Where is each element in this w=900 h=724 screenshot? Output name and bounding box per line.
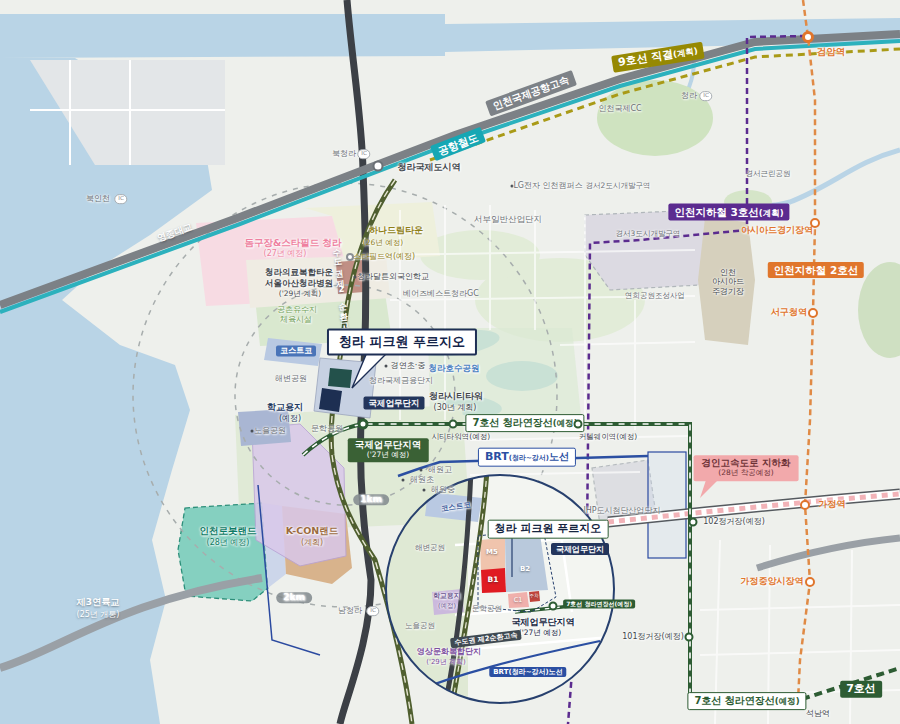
haewon-cho-dot [402,479,405,482]
ibd-label: 국제업무단지 [369,397,420,407]
line7ext-bottom-label: 7호선 청라연장선 [694,695,774,706]
brt-label-3: 노선 [549,451,569,462]
geomam-station-marker [802,31,814,43]
namcheongna-ic-label: 남청라 [338,607,362,615]
inset-munhak-label: 문학공원 [472,605,502,613]
inset-school-sub: (예정) [438,603,456,610]
inset-line7ext-label: 7호선 청라연장선 [566,600,614,607]
line7ext-bottom-sub: (예정) [775,696,800,706]
brt-badge: BRT(청라~강서)노선 [478,448,576,467]
line9-badge-sub: (계획) [672,45,698,59]
inset-title-label: 청라 피크원 푸르지오 [495,522,602,535]
bridge3-sub: (25년 개통) [77,611,120,619]
inset-brt-badge: BRT(청라~강서)노선 [489,667,566,677]
asiad-station-marker [810,218,820,228]
haewon-go-dot [420,469,423,472]
canalway-station-marker [574,420,583,429]
ibd-badge: 국제업무단지 [364,397,425,410]
hana-dream-label: 하나드림타운 [369,226,423,235]
line7-label: 7호선 [846,682,876,695]
inset-block-b1: B1 [488,576,499,584]
ibd-station-badge: 국제업무단지역 ('27년 예정) [348,438,429,462]
cheongna-intl-station-marker [373,161,384,172]
gyeongyeon-label: 경연초·중 [391,362,426,370]
line7ext-badge: 7호선 청라연장선(예정) [465,414,584,432]
inset-block-m5: M5 [486,549,498,556]
seogucheong-station-label: 서구청역 [771,308,807,317]
asiad-station-label: 아시아드경기장역 [741,226,813,235]
kcon-land-label: K-CON랜드 [286,526,338,536]
s101-station-marker [685,633,694,642]
yeonhui-label: 연희공원조성사업 [625,292,685,300]
asiad-stadium-label: 인천 아시아드 주경기장 [712,269,744,296]
school-site-label: 학교용지 [267,403,303,412]
gajeong-market-station-label: 가정중앙시장역 [741,577,804,586]
noeul-park-label: 노을공원 [254,427,286,435]
line3-badge: 인천지하철 3호선(계획) [668,204,789,221]
dome-starfield-sub: (27년 예정) [264,250,307,258]
main-title-label: 청라 피크원 푸르지오 [339,334,465,349]
inset-ibd-label: 국제업무단지 [556,544,604,553]
bukcheongna-ic-oval: IC [357,149,370,159]
inset-station-marker [549,602,558,611]
haewon-jung-dot [423,489,426,492]
medical-town-sub: ('29년 계획) [279,290,321,298]
starfield-station-marker [346,253,354,261]
gyeongyeon-dot [385,365,388,368]
hana-dream-sub: (26년 예정) [363,239,403,247]
citytower-station-label: 시티타워역(예정) [432,433,490,441]
gyeongseo-park-label: 경서근린공원 [746,170,791,178]
line7ext-label: 7호선 청라연장선 [472,417,552,428]
cheongna-ic-label: 청라 [681,92,697,100]
stadium-line2: 아시아드 [712,279,744,287]
gajeong-station-label: 가정역 [819,500,846,509]
incheon-cc-label: 인천국제CC [598,105,641,113]
medical-town-label: 청라의료복합타운 [265,268,333,277]
cheongna-location-map: 9호선 직결(계획) 인천국제공항고속 공항철도 영종대교 검암역 인천국제CC… [0,0,900,724]
scale-2km: 2km [276,592,312,603]
lake-park-label: 청라호수공원 [429,364,480,373]
ibd-station-marker [358,419,369,430]
line2-badge-label: 인천지하철 2호선 [774,264,858,276]
inset-school-label: 학교용지 [433,593,461,600]
brt-label-2: (청라~강서) [509,454,549,462]
cheongna-intl-station-label: 청라국제도시역 [398,163,461,172]
citytower-station-marker [449,420,458,429]
seogucheong-station-marker [808,308,818,318]
costco-label: 코스트코 [280,346,312,355]
gyeongin-badge: 경인고속도로 지하화 (28년 착공예정) [694,455,799,481]
haewon-jung-label: 해원중 [431,486,455,494]
dalton-label: 청라달튼외국인학교 [357,273,429,281]
inset-title-badge: 청라 피크원 푸르지오 [488,520,609,539]
inset-noeul-label: 노을공원 [405,622,435,630]
haewon-cho-label: 해원초 [410,476,434,484]
finance-district-label: 청라국제금융단지 [369,377,433,385]
gyeongseo2-label: 경서2도시개발구역 [586,182,651,190]
inset-ibd-station-sub: ('27년 예정) [519,629,561,637]
inset-haebyeon-label: 해변공원 [415,544,445,552]
s102-station-marker [689,518,698,527]
s101-station-label: 101정거장(예정) [622,633,684,641]
gyeongseo3-label: 경서3도시개발구역 [616,230,681,238]
costco-badge: 코스트코 [276,345,316,356]
bukincheon-ic-oval: IC [114,194,127,204]
line2-badge: 인천지하철 2호선 [768,262,864,278]
line7ext-bottom-badge: 7호선 청라연장선(예정) [687,692,806,710]
inset-brt-label: BRT(청라~강서)노선 [493,668,562,676]
citytower-sub: (30년 계획) [434,404,477,412]
inset-ibd-badge: 국제업무단지 [551,543,609,555]
bukincheon-ic-label: 북인천 [86,195,110,203]
seoknam-station-label: 석남역 [806,710,830,718]
citytower-label: 청라시티타워 [429,392,483,401]
haebyeon-park-label: 해변공원 [275,375,307,383]
s102-station-label: 102정거장(예정) [703,518,765,526]
stadium-line3: 주경기장 [712,288,744,296]
robot-land-label: 인천로봇랜드 [200,526,257,536]
ihp-label: IHP도시첨단산업단지 [583,507,660,515]
namcheongna-ic-oval: IC [366,606,379,616]
line3-badge-sub: (계획) [759,208,784,218]
kcon-land-sub: (계획) [301,539,323,547]
haewon-go-label: 해원고 [428,466,452,474]
bridge3-label: 제3연륙교 [77,598,119,607]
lg-campus-label: LG전자 인천캠퍼스 [513,182,582,190]
inset-block-parking: 주차 [530,594,539,599]
school-site-sub: (예정) [279,415,301,423]
gongchon-label: 공촌유수지 [277,306,317,314]
cheongna-ic-oval: IC [699,91,712,101]
starfield-station-label: 스타필드역(예정) [353,253,415,261]
bukcheongna-ic-label: 북청라 [332,150,356,158]
medical-town-line2: 서울아산청라병원 [265,279,333,288]
inset-line7ext-sub: (예정) [614,600,631,607]
inset-yeongsang-label: 영상문화복합단지 [417,648,481,656]
inset-line7ext-badge: 7호선 청라연장선(예정) [563,600,635,609]
robot-land-sub: (28년 예정) [207,539,250,547]
ibd-station-line2: ('27년 예정) [355,451,422,460]
inset-yeongsang-sub: ('29년 계획) [426,659,466,666]
munhak-park-label: 문학공원 [311,425,343,433]
main-title-badge: 청라 피크원 푸르지오 [327,329,477,356]
inset-block-b2: B2 [520,566,530,573]
dome-starfield-label: 돔구장&스타필드 청라 [244,238,341,248]
gyeongin-line2: (28년 착공예정) [702,469,791,478]
scale-1km: 1km [353,494,389,505]
gongchon-sub: 체육시설 [280,316,312,324]
canalway-station-label: 커넬웨이역(예정) [579,433,637,441]
inset-ibd-station-label: 국제업무단지역 [512,618,575,627]
line3-badge-label: 인천지하철 3호선 [674,206,758,218]
gajeong-market-station-marker [805,577,815,587]
gajeong-station-marker [800,500,810,510]
brt-label-1: BRT [485,450,509,463]
geomam-station-label: 검암역 [817,47,846,57]
bears-best-label: 베어즈베스트청라GC [403,290,479,298]
inset-block-c1: C1 [514,597,523,604]
line7-badge: 7호선 [840,681,882,698]
seobu-industrial-label: 서부일반산업단지 [474,215,542,224]
